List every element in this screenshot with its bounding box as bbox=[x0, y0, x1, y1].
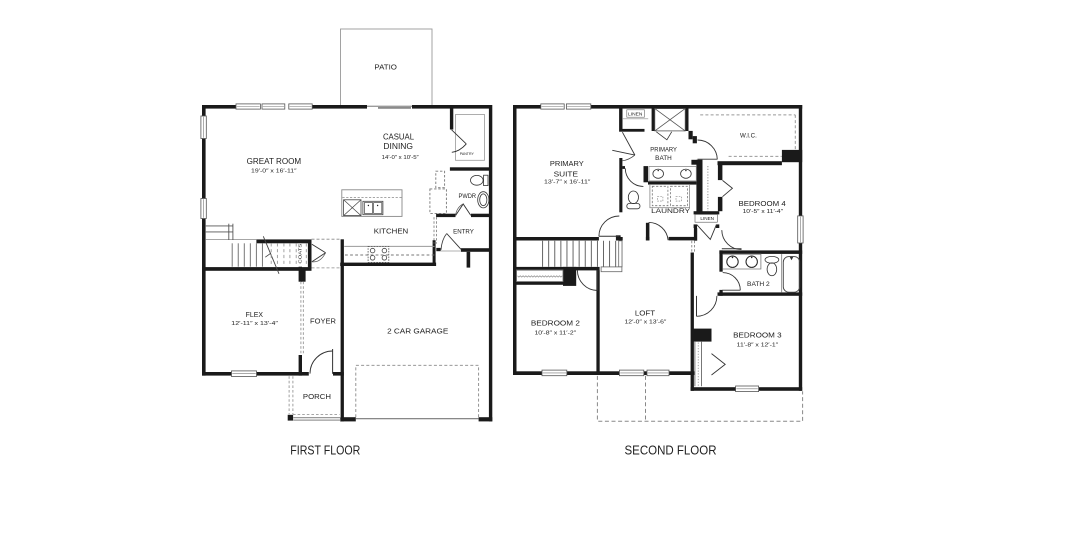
svg-text:10′-5″ x 11′-4″: 10′-5″ x 11′-4″ bbox=[743, 209, 783, 215]
svg-text:PORCH: PORCH bbox=[303, 394, 331, 401]
svg-text:BEDROOM 2: BEDROOM 2 bbox=[531, 318, 580, 327]
svg-text:12′-11″ x 13′-4″: 12′-11″ x 13′-4″ bbox=[231, 321, 278, 327]
svg-text:PANTRY: PANTRY bbox=[460, 151, 474, 156]
svg-text:PRIMARY: PRIMARY bbox=[650, 147, 677, 154]
svg-text:2 CAR GARAGE: 2 CAR GARAGE bbox=[387, 327, 448, 336]
svg-text:PRIMARY: PRIMARY bbox=[550, 159, 584, 168]
svg-text:BEDROOM 4: BEDROOM 4 bbox=[739, 199, 786, 208]
svg-text:LINEN: LINEN bbox=[700, 216, 714, 221]
svg-text:14′-0″ x 10′-5″: 14′-0″ x 10′-5″ bbox=[382, 155, 419, 161]
svg-text:SUITE: SUITE bbox=[554, 169, 578, 178]
svg-text:W.I.C.: W.I.C. bbox=[740, 132, 757, 139]
svg-text:LAUNDRY: LAUNDRY bbox=[651, 208, 691, 215]
svg-text:BEDROOM 3: BEDROOM 3 bbox=[733, 331, 782, 340]
svg-text:12′-0″ x 13′-6″: 12′-0″ x 13′-6″ bbox=[625, 320, 667, 326]
svg-text:PATIO: PATIO bbox=[374, 62, 397, 71]
svg-text:19′-0″ x 16′-11″: 19′-0″ x 16′-11″ bbox=[251, 169, 297, 175]
svg-text:DINING: DINING bbox=[383, 142, 413, 151]
svg-text:BATH: BATH bbox=[655, 155, 672, 162]
svg-text:13′-7″ x 16′-11″: 13′-7″ x 16′-11″ bbox=[544, 179, 590, 185]
svg-text:KITCHEN: KITCHEN bbox=[374, 227, 409, 236]
svg-text:CASUAL: CASUAL bbox=[383, 132, 415, 141]
svg-text:ENTRY: ENTRY bbox=[453, 228, 474, 235]
svg-text:LINEN: LINEN bbox=[628, 111, 642, 116]
svg-text:COATS: COATS bbox=[297, 244, 302, 264]
svg-text:FOYER: FOYER bbox=[310, 317, 336, 326]
svg-text:PWDR: PWDR bbox=[459, 193, 477, 200]
svg-text:GREAT ROOM: GREAT ROOM bbox=[247, 157, 302, 166]
svg-text:BATH 2: BATH 2 bbox=[747, 281, 770, 288]
svg-text:FLEX: FLEX bbox=[246, 310, 263, 319]
svg-text:11′-8″ x 12′-1″: 11′-8″ x 12′-1″ bbox=[737, 343, 778, 349]
svg-text:10′-8″ x 11′-2″: 10′-8″ x 11′-2″ bbox=[535, 331, 577, 337]
svg-text:FIRST FLOOR: FIRST FLOOR bbox=[290, 442, 360, 457]
svg-text:LOFT: LOFT bbox=[635, 309, 656, 318]
svg-text:SECOND FLOOR: SECOND FLOOR bbox=[625, 442, 717, 457]
